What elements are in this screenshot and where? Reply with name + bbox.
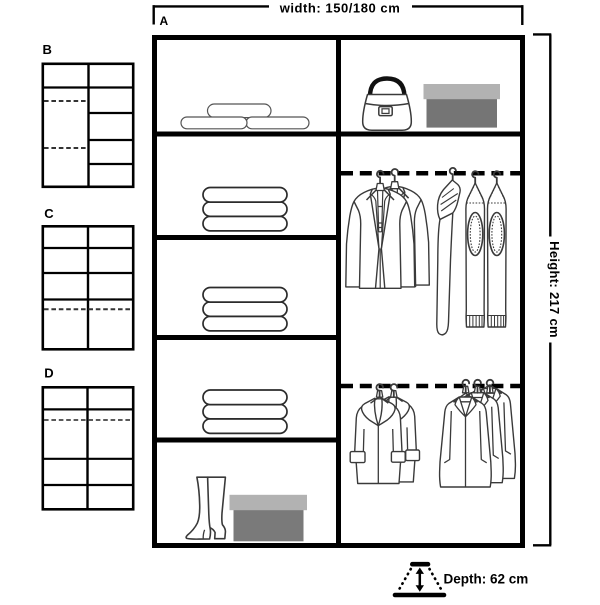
svg-text:A: A [160, 14, 169, 28]
svg-text:B: B [43, 42, 52, 57]
svg-text:Height: 217 cm: Height: 217 cm [547, 241, 562, 338]
svg-text:D: D [44, 366, 53, 381]
svg-text:Depth: 62 cm: Depth: 62 cm [444, 572, 529, 587]
svg-text:C: C [44, 206, 54, 221]
svg-text:width: 150/180 cm: width: 150/180 cm [279, 0, 401, 15]
